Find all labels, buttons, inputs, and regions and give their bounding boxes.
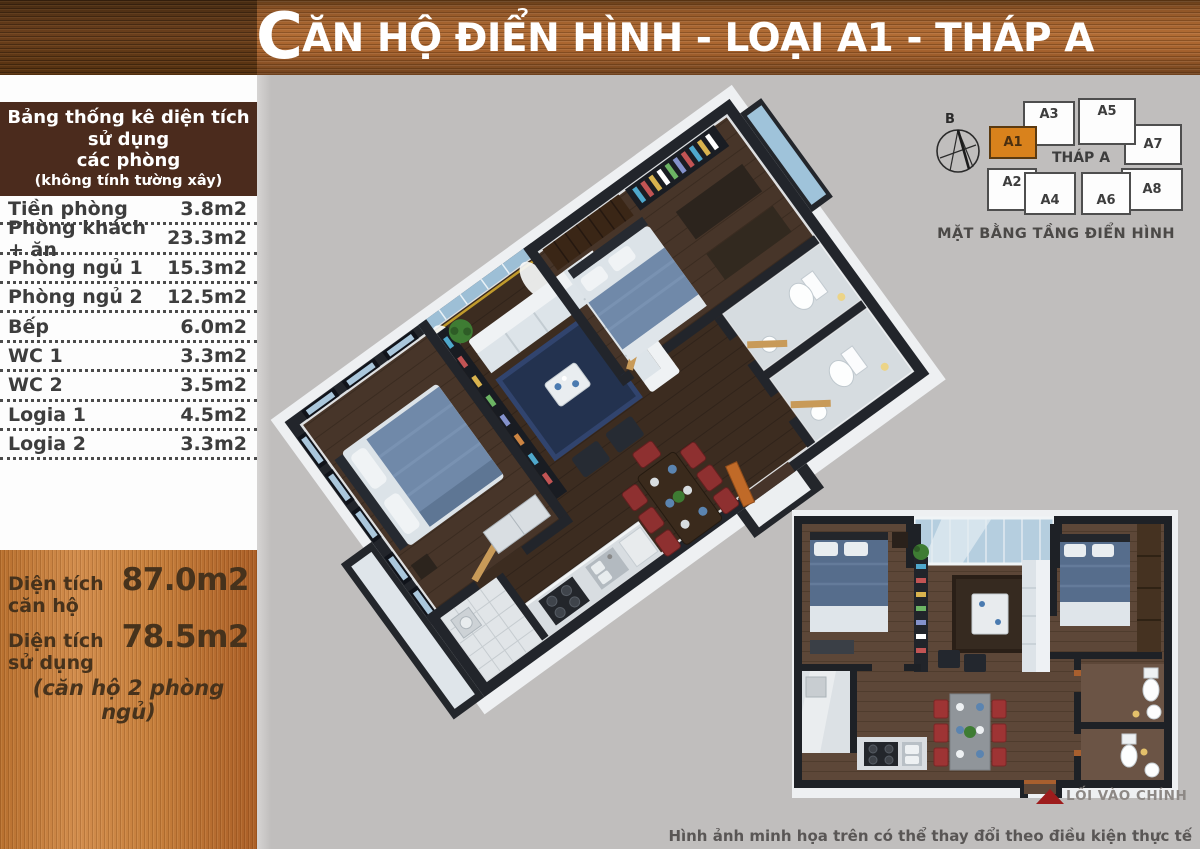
- table-row: WC 13.3m2: [0, 343, 257, 372]
- title-initial: C: [256, 0, 302, 75]
- tower-caption: MẶT BẰNG TẦNG ĐIỂN HÌNH: [906, 226, 1200, 242]
- room-label: Logia 2: [8, 433, 86, 455]
- entrance-label: LỐI VÀO CHÍNH: [1036, 788, 1187, 804]
- room-area: 3.5m2: [180, 374, 247, 396]
- floor-plan-2d: [792, 502, 1184, 804]
- svg-text:B: B: [945, 112, 955, 127]
- room-area: 6.0m2: [180, 316, 247, 338]
- room-area: 3.3m2: [180, 433, 247, 455]
- room-area: 12.5m2: [167, 286, 247, 308]
- room-label: Phòng ngủ 2: [8, 286, 143, 308]
- unit-block-a6: A6: [1081, 172, 1131, 215]
- room-area: 3.3m2: [180, 345, 247, 367]
- compass-icon: B: [928, 109, 986, 179]
- area-table-column: Bảng thống kê diện tích sử dụng các phòn…: [0, 75, 257, 849]
- table-row: Phòng ngủ 115.3m2: [0, 255, 257, 284]
- room-label: WC 2: [8, 374, 63, 396]
- summary-label: Diện tích sử dụng: [8, 630, 122, 674]
- door-leaf: [747, 340, 787, 348]
- entrance-threshold: [1024, 780, 1056, 784]
- header-dark-corner: [0, 0, 257, 75]
- area-table-rows: Tiền phòng3.8m2 Phòng khách + ăn23.3m2 P…: [0, 196, 257, 461]
- area-table-title-line1: Bảng thống kê diện tích sử dụng: [6, 107, 251, 150]
- table-row: Logia 23.3m2: [0, 431, 257, 460]
- wc-block: [1074, 657, 1164, 788]
- summary-label: Diện tích căn hộ: [8, 573, 122, 617]
- summary-value: 87.0m2: [122, 562, 249, 598]
- table-row: Bếp6.0m2: [0, 313, 257, 342]
- disclaimer-text: Hình ảnh minh họa trên có thể thay đổi t…: [668, 827, 1192, 845]
- room-label: Phòng khách + ăn: [8, 217, 167, 261]
- unit-block-a1-highlighted: A1: [989, 126, 1037, 159]
- summary-value: 78.5m2: [122, 619, 249, 655]
- table-row: Logia 14.5m2: [0, 402, 257, 431]
- bookshelf: [913, 544, 929, 672]
- table-row: Phòng ngủ 212.5m2: [0, 284, 257, 313]
- summary-row: Diện tích sử dụng 78.5m2: [8, 619, 249, 674]
- apartment-poster: CĂN HỘ ĐIỂN HÌNH - LOẠI A1 - THÁP A Bảng…: [0, 0, 1200, 849]
- room-area: 15.3m2: [167, 257, 247, 279]
- area-table-title: Bảng thống kê diện tích sử dụng các phòn…: [0, 102, 257, 196]
- room-label: Logia 1: [8, 404, 86, 426]
- title-rest: ĂN HỘ ĐIỂN HÌNH - LOẠI A1 - THÁP A: [302, 16, 1094, 61]
- tower-key-diagram: B A3 A5 A7 A2 A4 A6 A8 A1 THÁP A MẶT BẰN…: [918, 95, 1194, 245]
- door-leaf: [791, 400, 831, 408]
- room-area: 23.3m2: [167, 227, 247, 249]
- table-row: WC 23.5m2: [0, 372, 257, 401]
- area-table-subtitle: (không tính tường xây): [6, 172, 251, 190]
- table-row: Phòng khách + ăn23.3m2: [0, 225, 257, 254]
- summary-row: Diện tích căn hộ 87.0m2: [8, 562, 249, 617]
- room-label: Bếp: [8, 316, 49, 338]
- room-label: Phòng ngủ 1: [8, 257, 143, 279]
- room-area: 3.8m2: [180, 198, 247, 220]
- summary-note: (căn hộ 2 phòng ngủ): [8, 676, 249, 724]
- dining-set: [934, 694, 1006, 770]
- area-table-title-line2: các phòng: [6, 150, 251, 172]
- entrance-text: LỐI VÀO CHÍNH: [1066, 788, 1187, 804]
- entrance-arrow-icon: [1036, 789, 1064, 804]
- page-title: CĂN HỘ ĐIỂN HÌNH - LOẠI A1 - THÁP A: [256, 0, 1094, 75]
- room-area: 4.5m2: [180, 404, 247, 426]
- unit-block-a5: A5: [1078, 98, 1136, 145]
- room-label: WC 1: [8, 345, 63, 367]
- tower-label: THÁP A: [1036, 150, 1126, 166]
- area-summary-panel: Diện tích căn hộ 87.0m2 Diện tích sử dụn…: [0, 550, 257, 849]
- unit-block-a4: A4: [1024, 172, 1076, 215]
